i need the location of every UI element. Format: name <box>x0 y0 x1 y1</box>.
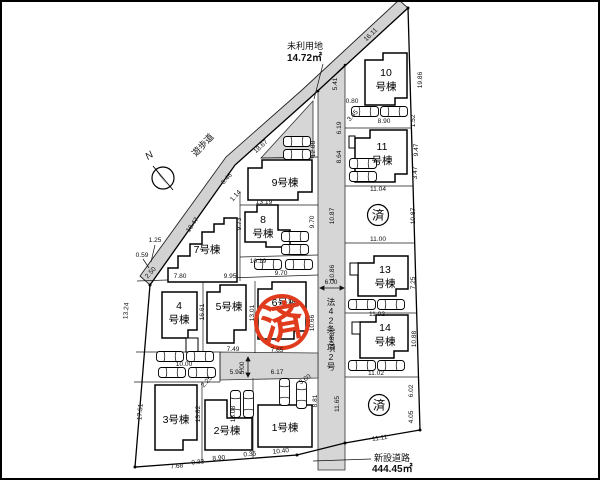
dimension-label: 10.87 <box>329 207 336 224</box>
dimension-label: 0.80 <box>346 98 359 105</box>
vertex-dot <box>344 442 347 445</box>
dimension-label: 7.65 <box>271 347 284 354</box>
building-annex <box>352 322 360 334</box>
compass: N <box>143 149 174 190</box>
new-road-label: 新設道路 <box>374 452 410 463</box>
building-label-5: 5号棟 <box>216 300 243 313</box>
dimension-label: 10.87 <box>410 207 417 224</box>
walkway-label: 遊歩道 <box>189 131 215 158</box>
car-icon <box>349 300 376 310</box>
car-icon <box>350 172 377 182</box>
dimension-label: 11.65 <box>334 396 341 412</box>
dimension-label: 13.82 <box>195 405 202 422</box>
dimension-label: 17.51 <box>136 403 144 420</box>
dimension-label: 6.17 <box>271 369 284 376</box>
north-label: N <box>143 149 156 163</box>
dimension-label: 1.14 <box>229 189 243 203</box>
car-icon <box>189 368 216 378</box>
vertex-dot <box>344 64 347 67</box>
unused-land-label: 未利用地 <box>287 40 323 51</box>
dimension-label: 7.68 <box>170 462 184 470</box>
dimension-label: 1.52 <box>410 114 417 127</box>
dimension-label: 13.01 <box>249 304 256 321</box>
dimension-label: 3.47 <box>412 166 419 179</box>
sold-text: 済 <box>373 399 386 413</box>
building-label-2: 2号棟 <box>214 424 241 437</box>
unused-land-area: 14.72㎡ <box>287 51 322 64</box>
dimension-label: 10.88 <box>411 330 418 347</box>
building-5 <box>207 285 246 343</box>
building-13 <box>358 256 408 296</box>
sold-text: 済 <box>372 209 385 223</box>
vertex-dot <box>149 284 152 287</box>
building-annex <box>186 338 198 352</box>
svg-text:遊歩道: 遊歩道 <box>189 131 215 158</box>
dimension-label: 9.73 <box>236 217 243 230</box>
dimension-label: 16.61 <box>199 303 206 320</box>
dimension-label: 0.59 <box>136 252 149 259</box>
dimension-label: 8.81 <box>312 394 319 407</box>
car-icon <box>157 352 184 362</box>
dimension-label: 6.02 <box>408 384 415 397</box>
car-icon <box>187 352 214 362</box>
dimension-label: 0.35 <box>243 450 257 458</box>
vertex-dot <box>407 7 410 10</box>
sold-circle: 済 <box>369 395 390 416</box>
car-icon <box>349 361 376 371</box>
dimension-label: 13.19 <box>256 199 273 206</box>
car-icon <box>378 361 405 371</box>
dimension-label: 4.05 <box>408 410 415 423</box>
car-icon <box>378 300 405 310</box>
dimension-label: 7.80 <box>174 273 187 280</box>
dimension-label: 10.40 <box>272 447 289 456</box>
car-icon <box>244 391 254 418</box>
dimension-label: 7.49 <box>227 346 240 353</box>
dimension-label: 11.02 <box>369 311 385 318</box>
car-icon <box>280 379 290 406</box>
dimension-label: 11.11 <box>372 434 389 443</box>
building-10 <box>365 53 407 105</box>
dimension-label: 19.86 <box>417 71 424 88</box>
dimension-label: 10.19 <box>250 258 267 265</box>
dimension-label: 9.70 <box>309 215 316 228</box>
dimension-label: 9.70 <box>275 270 288 277</box>
dimension-label: 8.90 <box>212 454 226 462</box>
building-label-3: 3号棟 <box>163 413 190 426</box>
dimension-label: 11.02 <box>368 370 384 377</box>
dimension-label: 13.24 <box>122 302 130 319</box>
site-plan-drawing: 10号棟 11号棟 13号棟 14号棟 9号棟 8号棟 7号棟 4号棟 5号棟 … <box>0 0 600 480</box>
car-icon <box>286 260 313 270</box>
site-plan-page: 10号棟 11号棟 13号棟 14号棟 9号棟 8号棟 7号棟 4号棟 5号棟 … <box>0 0 600 480</box>
dimension-label: 9.95 <box>224 273 237 280</box>
vertex-dot <box>296 454 299 457</box>
north-arrow-icon <box>153 166 168 186</box>
dimension-label: 5.41 <box>332 77 339 90</box>
building-annex <box>350 263 358 275</box>
dimension-label: 10.66 <box>309 314 316 331</box>
car-icon <box>282 232 309 242</box>
car-icon <box>381 107 408 117</box>
building-label-7: 7号棟 <box>194 243 221 256</box>
dimension-label: 8.90 <box>378 118 391 125</box>
car-icon <box>284 150 311 160</box>
vertex-dot <box>419 429 422 432</box>
vertex-dot <box>317 90 320 93</box>
lot-boundary-line <box>240 255 318 257</box>
dimension-label: 8.64 <box>336 150 343 163</box>
building-label-1: 1号棟 <box>272 421 299 434</box>
dimension-label: 12.88 <box>310 140 317 157</box>
vertex-dot <box>134 466 137 469</box>
building-label-9: 9号棟 <box>272 176 299 189</box>
dimension-label: 11.00 <box>370 236 386 243</box>
dimension-label: 6.19 <box>336 121 343 134</box>
dimension-label: 10.00 <box>176 361 193 368</box>
dimension-label: 9.47 <box>413 143 420 156</box>
dimension-label: 7.25 <box>410 276 417 289</box>
new-road-area: 444.45㎡ <box>372 462 413 475</box>
dimension-label: 5.97 <box>230 369 243 376</box>
car-icon <box>159 368 186 378</box>
building-annex <box>349 136 355 148</box>
dimension-label: 0.33 <box>191 458 205 466</box>
dimension-label: 1.25 <box>149 237 162 244</box>
tick-line <box>143 259 149 268</box>
dimension-label: 13.08 <box>230 405 237 422</box>
car-icon <box>284 137 311 147</box>
car-icon <box>282 245 309 255</box>
dimension-label: 11.04 <box>370 186 386 193</box>
sold-circle: 済 <box>368 205 389 226</box>
dimension-label: 10.88 <box>329 332 336 349</box>
dimension-label: 6.00 <box>325 279 338 286</box>
